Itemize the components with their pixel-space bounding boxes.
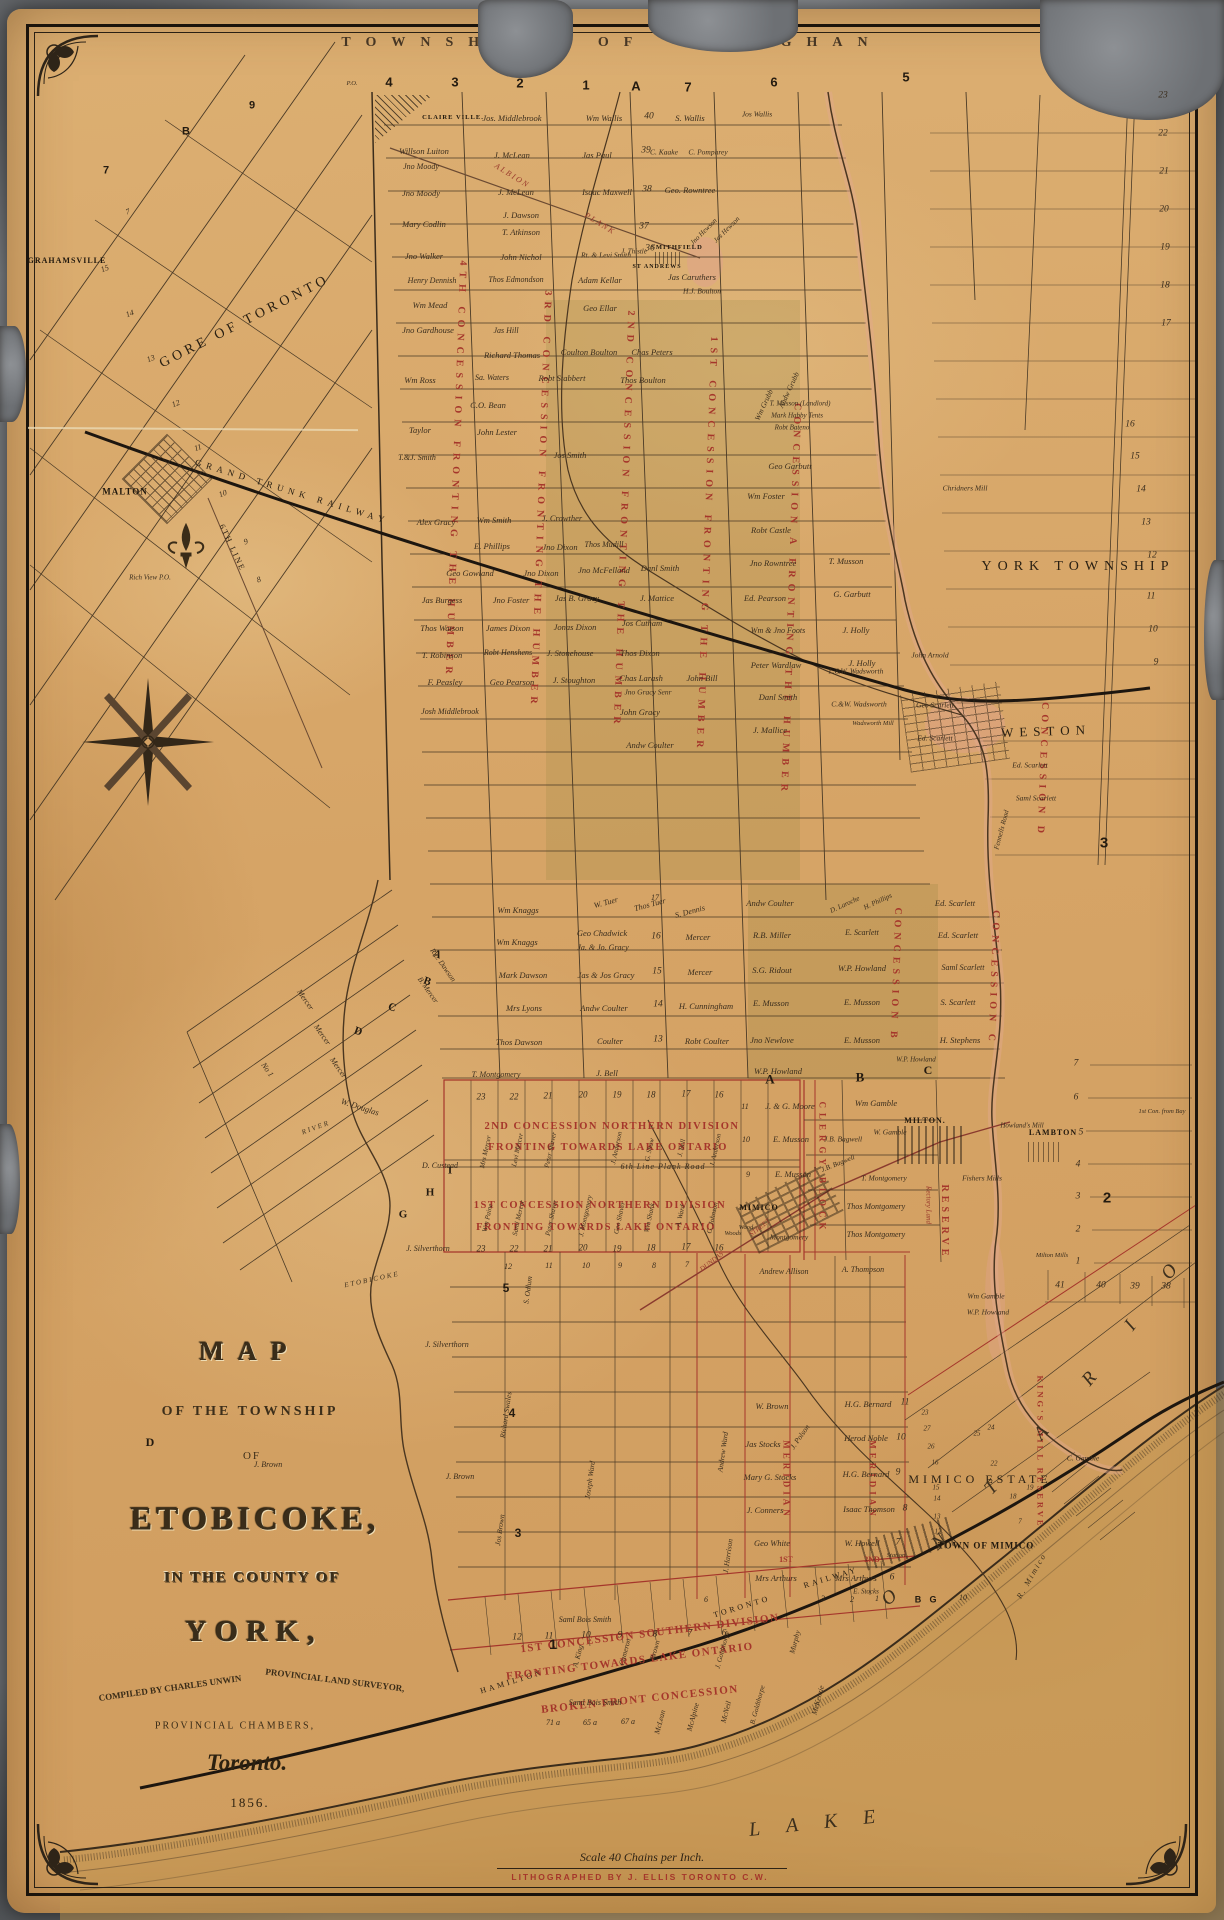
- map-label: Jas Burgess: [422, 596, 463, 605]
- scale-note: Scale 40 Chains per Inch.: [497, 1850, 787, 1869]
- map-label: E. Musson: [753, 999, 789, 1008]
- map-label: 15: [1130, 452, 1140, 462]
- map-label: 37: [639, 222, 649, 232]
- map-label: 1st Con. from Bay: [1138, 1109, 1185, 1116]
- map-label: 7: [896, 1538, 901, 1548]
- map-label: Herod Noble: [844, 1434, 888, 1443]
- map-label: 17: [651, 894, 659, 902]
- map-label: W.P. Howland: [896, 1057, 935, 1064]
- map-label: 5: [503, 1282, 510, 1294]
- map-label: Jno Gracy Senr: [624, 688, 671, 696]
- map-label: 20: [1159, 205, 1169, 215]
- map-label: 19: [613, 1091, 622, 1100]
- map-label: J. Silverthorn: [406, 1245, 450, 1253]
- mill-label: Howland's Mill: [1000, 1123, 1043, 1130]
- map-label: B: [182, 127, 190, 138]
- map-label: 2: [1076, 1225, 1081, 1235]
- map-label: 3: [515, 1527, 522, 1539]
- map-label: 10: [896, 1433, 906, 1443]
- road-label: 6th Line Plank Road: [621, 1163, 706, 1171]
- map-label: Henry Dennish: [408, 277, 457, 285]
- map-label: Thos Montgomery: [847, 1231, 905, 1239]
- map-label: 14: [1136, 485, 1146, 495]
- map-label: Ed. Pearson: [744, 594, 786, 603]
- map-label: Wm Gamble: [967, 1292, 1004, 1300]
- col-letter: A: [631, 80, 640, 93]
- place-lambton: LAMBTON: [1029, 1129, 1077, 1137]
- map-label: T. Montgomery: [472, 1071, 521, 1079]
- map-label: Danl Smith: [759, 693, 798, 702]
- map-label: Ed. Scarlett: [935, 899, 975, 908]
- map-label: J. Stonehouse: [547, 649, 594, 658]
- map-label: 16: [715, 1091, 724, 1100]
- map-label: Jno Dixon: [542, 543, 577, 552]
- title-etobicoke: ETOBICOKE,: [130, 1502, 379, 1539]
- map-label: Jos. Middlebrook: [482, 114, 541, 123]
- map-label: Jno Rowntree: [750, 559, 797, 568]
- map-label: Jno Foster: [493, 596, 530, 605]
- map-label: Robt Castle: [751, 526, 791, 535]
- map-label: F. Peasley: [428, 678, 463, 687]
- map-label: John Bill: [687, 674, 718, 683]
- map-label: Jonas Dixon: [554, 623, 597, 632]
- map-label: 7: [685, 1261, 689, 1269]
- map-label: Ed. Scarlett: [917, 734, 952, 742]
- col-number: 7: [684, 81, 691, 94]
- map-label: Thos Edmondson: [488, 276, 543, 284]
- map-label: Wm Mead: [413, 301, 448, 310]
- map-label: C.O. Bean: [470, 401, 506, 410]
- map-label: Wm Gamble: [855, 1099, 897, 1108]
- map-label: 13: [653, 1035, 663, 1045]
- reserve-label: Rectory Land: [925, 1186, 932, 1224]
- map-label: 10: [1148, 625, 1158, 635]
- meridian-label: 1ST: [779, 1556, 793, 1564]
- map-label: Mercer: [686, 933, 711, 942]
- map-label: 10: [742, 1136, 750, 1144]
- map-label: Wm Wallis: [586, 114, 622, 123]
- map-label: 18: [647, 1244, 656, 1253]
- map-label: Saml Scarlett: [1016, 794, 1056, 802]
- map-label: S. Wallis: [675, 114, 704, 123]
- map-label: 23: [477, 1245, 486, 1254]
- map-label: E. Musson: [773, 1135, 809, 1144]
- map-label: Jno Newlove: [750, 1036, 794, 1045]
- map-label: 9: [1154, 658, 1159, 668]
- map-label: 9: [618, 1631, 623, 1641]
- map-label: Geo Garbutt: [768, 462, 811, 471]
- map-label: H.G. Bernard: [843, 1470, 890, 1479]
- map-label: 15: [652, 967, 662, 977]
- map-label: 17: [1161, 319, 1171, 329]
- post-office: P.O.: [346, 81, 357, 88]
- map-label: 16: [651, 932, 661, 942]
- map-label: 24: [988, 1425, 995, 1432]
- map-label: J.B. Bagwell: [824, 1135, 862, 1143]
- map-label: 10: [582, 1262, 590, 1270]
- mill-label: Milton Mills: [1036, 1253, 1068, 1260]
- map-label: Alex Gracy: [417, 518, 455, 527]
- map-label: Jas B. Gracy: [555, 594, 599, 603]
- map-label: 18: [1160, 281, 1170, 291]
- map-label: 20: [579, 1091, 588, 1100]
- map-label: Mark Habby Tents: [771, 413, 823, 420]
- map-label: H. Cunningham: [679, 1002, 733, 1011]
- map-label: Mrs Arthurs: [835, 1574, 877, 1583]
- map-label: J. Mallice: [753, 726, 787, 735]
- map-label: E. Musson: [844, 1036, 880, 1045]
- place-st-andrews: ST ANDREWS: [632, 264, 681, 270]
- map-label: 4: [1076, 1160, 1081, 1170]
- map-label: 22: [1158, 129, 1168, 139]
- map-label: J. Stoughton: [553, 676, 596, 685]
- map-label: H.J. Boulton: [683, 287, 721, 295]
- place-mimico: MIMICO: [739, 1204, 778, 1212]
- map-label: Geo Scarlett: [916, 701, 954, 709]
- map-label: Chas Peters: [631, 348, 672, 357]
- map-label: W. Gamble: [873, 1128, 906, 1136]
- map-label: E. Musson: [775, 1170, 811, 1179]
- reserve-label: RESERVE: [939, 1185, 949, 1260]
- map-label: Wm Smith: [477, 516, 512, 525]
- map-label: J. Bell: [596, 1069, 618, 1078]
- map-label: Saml Bois Smith: [559, 1616, 611, 1624]
- map-photo: TOWNSHIP OF VAUGHAN MAP OF THE TOWNSHIP …: [0, 0, 1224, 1920]
- map-label: Geo Ellar: [583, 304, 617, 313]
- map-label: S. Scarlett: [941, 998, 976, 1007]
- map-label: Jno Dixon: [523, 569, 558, 578]
- map-label: 21: [544, 1092, 553, 1101]
- map-label: 40: [1096, 1281, 1106, 1291]
- map-label: 11: [901, 1398, 910, 1408]
- map-label: S.G. Ridout: [752, 966, 791, 975]
- map-label: 12: [512, 1633, 522, 1643]
- map-label: 6: [1074, 1093, 1079, 1103]
- mill-label: Chridners Mill: [943, 484, 988, 492]
- map-label: 71 a: [546, 1719, 560, 1727]
- map-label: B: [915, 1596, 922, 1605]
- map-label: Jas Hill: [493, 327, 518, 335]
- map-label: C. Pomphrey: [688, 148, 727, 156]
- col-number: 5: [902, 71, 909, 84]
- map-label: Jos Wallis: [742, 110, 772, 118]
- map-label: L.&W. Wadsworth: [829, 667, 884, 675]
- map-label: J. Brown: [446, 1473, 475, 1481]
- map-label: Willson Luiton: [399, 147, 449, 156]
- map-label: Jas Caruthers: [668, 273, 716, 282]
- map-label: 9: [618, 1262, 622, 1270]
- map-label: Jno McFelland: [578, 566, 630, 575]
- map-label: Jas Paul: [582, 151, 612, 160]
- map-label: 6: [890, 1573, 895, 1583]
- map-label: 26: [928, 1444, 935, 1451]
- map-label: Geo Gowland: [446, 569, 493, 578]
- map-label: Ja. & Jo. Gracy: [577, 944, 628, 952]
- map-label: Wm & Jno Foots: [751, 627, 805, 635]
- map-label: B: [856, 1071, 865, 1084]
- map-label: Jno Moody: [402, 189, 440, 198]
- col-number: 3: [451, 76, 458, 89]
- map-label: Woods: [724, 1231, 741, 1238]
- map-label: Wm Ross: [404, 376, 435, 385]
- map-label: 23: [1158, 91, 1168, 101]
- map-label: 7: [103, 166, 109, 177]
- map-label: 16: [1125, 420, 1135, 430]
- map-label: J. Holly: [843, 626, 870, 635]
- map-label: Danl Smith: [641, 564, 680, 573]
- map-label: 67 a: [621, 1718, 635, 1726]
- map-label: 8: [903, 1504, 908, 1514]
- map-label: Josh Middlebrook: [421, 708, 479, 716]
- map-label: Thos Montgomery: [847, 1203, 905, 1211]
- post-office: Rich View P.O.: [129, 575, 171, 582]
- map-label: 7: [1018, 1519, 1022, 1526]
- map-label: E. Phillips: [474, 542, 510, 551]
- map-label: C. Gamble: [1067, 1454, 1100, 1462]
- map-label: 20: [579, 1244, 588, 1253]
- map-label: John Nichol: [500, 253, 541, 262]
- map-label: T. Atkinson: [502, 228, 540, 237]
- map-label: 38: [1161, 1282, 1171, 1292]
- map-label: 11: [545, 1262, 552, 1270]
- map-label: Chas Larash: [619, 674, 663, 683]
- map-label: 13: [1141, 518, 1151, 528]
- map-label: Wm Foster: [747, 492, 785, 501]
- concession-label: FRONTING TOWARDS LAKE ONTARIO: [488, 1143, 728, 1154]
- map-label: Isaac Maxwell: [582, 188, 632, 197]
- map-label: Robt Coulter: [685, 1037, 729, 1046]
- map-label: Jos Smith: [554, 451, 587, 460]
- map-label: John Lester: [477, 428, 517, 437]
- map-label: G: [929, 1596, 936, 1605]
- map-label: Thos Dawson: [496, 1038, 543, 1047]
- map-label: Saml Scarlett: [942, 964, 985, 972]
- map-label: Thos Dixon: [620, 649, 659, 658]
- col-number: 2: [516, 77, 523, 90]
- map-label: W.P. Howland: [754, 1067, 802, 1076]
- map-label: 11: [741, 1103, 748, 1111]
- map-label: 12: [1147, 551, 1157, 561]
- map-label: Ed. Scarlett: [1012, 761, 1047, 769]
- map-label: J. Conners: [747, 1506, 784, 1515]
- concession-label: 2ND CONCESSION NORTHERN DIVISION: [484, 1122, 739, 1133]
- map-label: D. Custead: [422, 1162, 458, 1170]
- col-number: 6: [770, 76, 777, 89]
- map-label: Montgomery: [770, 1233, 808, 1241]
- map-label: 3: [1076, 1192, 1081, 1202]
- map-label: Jas Stocks: [745, 1440, 780, 1449]
- map-label: Geo Chadwick: [577, 929, 627, 938]
- col-number: 4: [385, 76, 392, 89]
- concession-number: 3: [1100, 836, 1108, 851]
- map-label: 9: [249, 101, 255, 112]
- map-label: Robt Stabbert: [539, 374, 586, 383]
- map-label: E. Stocks: [853, 1589, 879, 1596]
- map-label: Jno Walker: [405, 252, 443, 261]
- concession-label: 1ST CONCESSION NORTHERN DIVISION: [474, 1201, 727, 1212]
- map-label: 9: [746, 1171, 750, 1179]
- title-toronto: Toronto.: [207, 1750, 287, 1776]
- map-label: James Dixon: [486, 624, 530, 633]
- map-label: 19: [613, 1245, 622, 1254]
- title-chambers: PROVINCIAL CHAMBERS,: [155, 1721, 315, 1732]
- map-label: W. Howell: [844, 1539, 879, 1548]
- map-label: 17: [682, 1243, 691, 1252]
- map-label: Richard Thomas: [484, 351, 540, 360]
- map-label: T.&J. Smith: [398, 454, 436, 462]
- map-label: 14: [934, 1496, 941, 1503]
- map-label: H.G. Bernard: [845, 1400, 892, 1409]
- map-label: Coulter: [597, 1037, 623, 1046]
- map-label: Jno Moody: [403, 163, 439, 171]
- map-label: Mary Codlin: [402, 220, 446, 229]
- map-label: E. Scarlett: [845, 929, 879, 937]
- map-label: Robt Henshens: [484, 649, 532, 657]
- concession-number: 2: [1103, 1191, 1111, 1206]
- mill-label: Wadsworth Mill: [852, 721, 893, 728]
- map-label: T. Montgomery: [861, 1174, 907, 1182]
- map-label: Geo. Rowntree: [665, 186, 716, 195]
- map-label: W.P. Howland: [838, 964, 886, 973]
- map-label: 7: [688, 1629, 693, 1639]
- map-label: Robt Bateno: [775, 425, 810, 432]
- map-label: 9: [896, 1468, 901, 1478]
- lithographer-imprint: LITHOGRAPHED BY J. ELLIS TORONTO C.W.: [430, 1872, 850, 1882]
- map-label: Jno Gardhouse: [402, 326, 454, 335]
- map-label: Geo Pearson: [490, 678, 535, 687]
- map-label: Andw Coulter: [626, 741, 673, 750]
- map-label: Mark Dawson: [499, 971, 547, 980]
- map-label: W. Brown: [756, 1402, 789, 1411]
- place-milton: MILTON.: [904, 1117, 945, 1125]
- map-label: Thos Watson: [420, 624, 463, 633]
- map-label: 19: [1160, 243, 1170, 253]
- col-number: 1: [582, 79, 589, 92]
- map-label: J. Crowther: [542, 514, 582, 523]
- map-label: 21: [544, 1245, 553, 1254]
- map-label: 5: [1079, 1128, 1084, 1138]
- map-label: D: [146, 1436, 155, 1448]
- map-label: 16: [715, 1244, 724, 1253]
- map-label: J. Thistle: [621, 249, 647, 256]
- map-label: J. McLean: [498, 188, 534, 197]
- map-label: 2: [850, 1596, 854, 1604]
- map-label: J. Dawson: [503, 211, 539, 220]
- map-label: Saml Bois Smith: [569, 1699, 621, 1707]
- map-label: 17: [682, 1090, 691, 1099]
- place-malton: MALTON: [102, 488, 148, 497]
- map-label: Andw Coulter: [746, 899, 793, 908]
- map-label: 18: [647, 1091, 656, 1100]
- map-label: H. Stephens: [940, 1036, 981, 1045]
- map-label: 39: [1130, 1282, 1140, 1292]
- map-label: 22: [991, 1461, 998, 1468]
- map-label: 18: [1010, 1494, 1017, 1501]
- map-label: J. Mattice: [640, 594, 674, 603]
- map-label: Thos Boulton: [620, 376, 666, 385]
- map-label: 13: [934, 1514, 941, 1521]
- map-label: W.P. Howland: [967, 1308, 1009, 1316]
- map-label: T. Musson: [829, 557, 864, 566]
- map-label: T. Robinson: [422, 651, 462, 660]
- map-label: Adam Kellar: [578, 276, 622, 285]
- title-county-of: IN THE COUNTY OF: [164, 1570, 341, 1587]
- map-label: 40: [644, 112, 654, 122]
- map-label: Andrew Allison: [759, 1268, 808, 1276]
- map-label: J. Brown: [254, 1461, 283, 1469]
- map-label: 22: [510, 1093, 519, 1102]
- map-label: G. Garbutt: [833, 590, 870, 599]
- map-label: Mrs Lyons: [506, 1004, 542, 1013]
- map-label: Coulton Boulton: [561, 348, 617, 357]
- place-grahamsville: GRAHAMSVILLE: [28, 257, 107, 265]
- map-label: Mrs Arthurs: [755, 1574, 797, 1583]
- map-label: Geo White: [754, 1539, 790, 1548]
- map-label: 12: [504, 1263, 512, 1271]
- map-label: 25: [974, 1431, 981, 1438]
- map-label: Jas & Jos Gracy: [578, 971, 635, 980]
- title-york: YORK,: [185, 1615, 323, 1649]
- map-label: Mercer: [688, 968, 713, 977]
- map-label: 10: [581, 1631, 591, 1641]
- map-label: Wm Knaggs: [497, 906, 538, 915]
- map-label: J. McLean: [494, 151, 530, 160]
- mimico-station: Station: [887, 1553, 905, 1560]
- map-label: 23: [477, 1093, 486, 1102]
- map-label: A. Thompson: [842, 1266, 884, 1274]
- map-label: 6: [704, 1596, 708, 1604]
- map-label: 10: [959, 1594, 967, 1602]
- map-label: H: [426, 1188, 435, 1199]
- title-of-the-township: OF THE TOWNSHIP: [162, 1404, 339, 1420]
- map-label: Sa. Waters: [475, 374, 509, 382]
- map-label: Mary G. Stocks: [744, 1473, 797, 1482]
- map-label: 11: [545, 1632, 554, 1642]
- map-label: C.&W. Wadsworth: [831, 700, 887, 708]
- map-label: 23: [922, 1410, 929, 1417]
- mill-label: Fishers Mills: [962, 1174, 1002, 1182]
- map-label: John Gracy: [620, 708, 660, 717]
- map-label: E. Musson: [844, 998, 880, 1007]
- map-label: C. Kaake: [650, 148, 678, 156]
- map-label: 14: [653, 1000, 663, 1010]
- map-label: 7: [1074, 1059, 1079, 1069]
- map-label: G: [399, 1210, 408, 1221]
- title-year: 1856.: [230, 1795, 269, 1811]
- map-label: Jos Cutham: [622, 619, 662, 628]
- map-label: Thos Mudill: [585, 541, 624, 549]
- map-label: 38: [642, 185, 652, 195]
- map-label: 21: [1159, 167, 1169, 177]
- map-label: Peter Wardlaw: [751, 661, 802, 670]
- map-label: Andw Coulter: [580, 1004, 627, 1013]
- map-label: 65 a: [583, 1719, 597, 1727]
- map-label: 8: [652, 1262, 656, 1270]
- map-label: 41: [1055, 1281, 1065, 1291]
- map-label: 3: [821, 1595, 825, 1603]
- map-label: J. & G. Moore: [765, 1102, 815, 1111]
- map-label: Taylor: [409, 426, 431, 435]
- place-claireville: CLAIRE VILLE.: [422, 115, 484, 122]
- map-label: 16: [932, 1460, 939, 1467]
- meridian-label: 2ND: [864, 1556, 880, 1564]
- map-label: 15: [933, 1485, 940, 1492]
- map-label: Ed. Scarlett: [938, 931, 978, 940]
- map-label: J. Silverthorn: [425, 1341, 469, 1349]
- map-label: John Arnold: [911, 651, 948, 659]
- map-label: Wm Knaggs: [496, 938, 537, 947]
- map-label: C: [924, 1064, 933, 1076]
